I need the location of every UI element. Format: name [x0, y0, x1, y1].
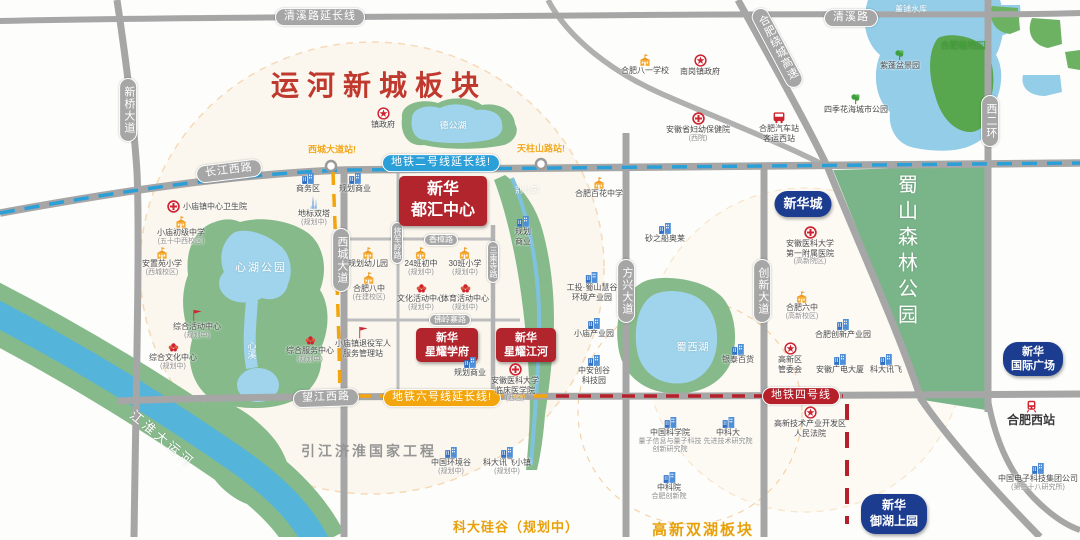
map-poi: 合肥百花中学 — [575, 177, 623, 199]
flag-icon — [191, 309, 203, 322]
park-water-label: 别公园 — [515, 185, 539, 196]
road-name-label: 西二环 — [981, 95, 999, 147]
map-poi: 文化活动中心(规划中) — [397, 282, 445, 312]
park-tree-icon — [850, 93, 862, 105]
map-poi: 中安创谷科技园 — [578, 354, 610, 385]
school-icon — [638, 54, 652, 66]
culture-center-icon — [167, 341, 180, 353]
road-name-label: 新桥大道 — [119, 78, 137, 142]
map-poi: 规划商业 — [454, 356, 486, 378]
school-icon — [361, 247, 375, 259]
map-poi: 中国环境谷(规划中) — [431, 446, 471, 476]
building-icon — [444, 446, 458, 458]
road-name-label: 合肥绕城高速 — [749, 5, 806, 91]
hospital-icon — [509, 363, 522, 376]
building-icon — [301, 172, 315, 184]
government-icon — [784, 342, 797, 355]
building-icon — [500, 446, 514, 458]
map-poi: 综合文化中心(规划中) — [149, 341, 197, 371]
flag-icon — [357, 326, 369, 339]
map-poi: 南岗镇政府 — [680, 54, 720, 77]
map-poi: 综合活动中心(规划中) — [173, 309, 221, 340]
map-poi: 高新技术产业开发区人民法院 — [774, 406, 846, 438]
area-title-label: 科大硅谷（规划中） — [453, 517, 579, 536]
area-title-label: 运河新城板块 — [271, 64, 487, 104]
map-poi: 合肥创新产业园 — [815, 318, 871, 340]
map-poi: 商务区 — [296, 172, 320, 194]
school-icon — [414, 247, 428, 259]
metro-line-label: 地铁六号线延长线! — [383, 389, 501, 407]
road-name-label: 佛岭寨路 — [429, 314, 471, 326]
map-poi: 四季花海城市公园 — [824, 93, 888, 115]
project-box: 新华城 — [775, 191, 832, 217]
train-station-icon — [1024, 400, 1037, 413]
culture-center-icon — [304, 334, 317, 346]
park-water-label: 合肥植物园 — [940, 39, 985, 52]
road-name-label: 将军岭路 — [391, 222, 403, 264]
map-poi: 工投·蜀山慧谷环境产业园 — [567, 271, 618, 302]
map-poi: 中科大先进技术研究院 — [704, 416, 753, 446]
culture-center-icon — [415, 282, 428, 294]
map-poi: 规划幼儿园 — [348, 247, 388, 269]
hospital-icon — [692, 112, 705, 125]
twin-towers-icon — [308, 195, 320, 209]
project-box: 新华都汇中心 — [399, 176, 487, 226]
map-poi: 规划商业 — [515, 215, 531, 246]
school-icon — [155, 247, 169, 259]
school-icon — [174, 216, 188, 228]
park-water-label: 心溪 — [246, 341, 259, 359]
map-poi: 安徽医科大学第一附属医院(高新院区) — [786, 226, 834, 267]
map-poi: 合肥八中(在建校区) — [353, 272, 386, 302]
map-poi: 科大讯飞小镇(规划中) — [483, 446, 531, 476]
map-poi: 地标双塔(规划中) — [298, 195, 330, 227]
map-poi: 小庙镇中心卫生院 — [167, 200, 247, 213]
real-estate-location-map: 清溪路延长线清溪路新桥大道长江西路西城大道将军岭路三乘寺路香樟路佛岭寨路方兴大道… — [0, 0, 1080, 537]
government-icon — [694, 54, 707, 67]
building-icon — [516, 215, 530, 227]
map-poi: 合肥六中(高新校区) — [786, 291, 819, 321]
park-water-label: 德公湖 — [439, 119, 466, 132]
area-title-label: 引江济淮国家工程 — [301, 441, 437, 461]
metro-line-label: 地铁四号线 — [762, 387, 840, 405]
building-icon — [662, 471, 676, 483]
building-icon — [879, 353, 893, 365]
building-icon — [663, 416, 677, 428]
map-poi: 综合服务中心(规划中) — [286, 334, 334, 364]
hospital-icon — [167, 200, 180, 213]
hospital-icon — [804, 226, 817, 239]
map-poi: 紫蓬盆景园 — [880, 49, 920, 71]
park-water-label: 心湖公园 — [235, 259, 287, 275]
building-icon — [833, 353, 847, 365]
metro-line-label: 地铁二号线延长线! — [382, 154, 500, 172]
road-name-label: 长江西路 — [195, 158, 263, 184]
map-poi: 科大讯飞 — [870, 353, 902, 375]
map-poi: 高新区管委会 — [778, 342, 802, 374]
map-poi: 安徽广电大厦 — [816, 353, 864, 375]
project-box: 新华御湖上园 — [861, 494, 927, 534]
building-icon — [658, 222, 672, 234]
building-icon — [836, 318, 850, 330]
metro-station-label: 天柱山路站! — [517, 142, 565, 155]
culture-center-icon — [459, 282, 472, 294]
park-water-label: 蜀西湖 — [677, 339, 710, 354]
building-icon — [1031, 462, 1045, 474]
government-icon — [377, 107, 390, 120]
map-poi: 中国科学院量子信息与量子科技创新研究院 — [639, 416, 702, 454]
park-tree-icon — [894, 49, 906, 61]
map-poi: 银泰百货 — [722, 343, 754, 365]
map-label-overlay: 清溪路延长线清溪路新桥大道长江西路西城大道将军岭路三乘寺路香樟路佛岭寨路方兴大道… — [0, 0, 1080, 537]
road-name-label: 方兴大道 — [617, 259, 635, 323]
map-poi: 小庙镇退役军人服务管理站 — [335, 326, 391, 358]
map-poi: 体育活动中心(规划中) — [441, 282, 489, 312]
map-poi: 安置苑小学(西城校区) — [142, 247, 182, 277]
bus-station-icon — [772, 111, 786, 124]
school-icon — [592, 177, 606, 189]
road-name-label: 望江西路 — [293, 388, 360, 408]
map-poi: 中科院合肥创新院 — [652, 471, 687, 501]
park-water-label: 董铺水库 — [895, 4, 927, 15]
metro-station-label: 西城大道站! — [308, 143, 356, 156]
map-poi: 镇政府 — [371, 107, 395, 130]
building-icon — [348, 172, 362, 184]
building-icon — [463, 356, 477, 368]
building-icon — [585, 271, 599, 283]
government-icon — [804, 406, 817, 419]
map-poi: 合肥八一学校 — [621, 54, 669, 76]
park-water-label: 江淮大运河 — [126, 405, 200, 471]
school-icon — [795, 291, 809, 303]
map-poi: 安徽医科大学临床医学院(西区) — [491, 363, 539, 404]
school-icon — [362, 272, 376, 284]
map-poi: 合肥西站 — [1007, 400, 1055, 427]
project-box: 新华国际广场 — [1003, 342, 1063, 376]
area-title-label: 高新双湖板块 — [652, 519, 754, 540]
map-poi: 合肥汽车站客运西站 — [759, 111, 799, 143]
building-icon — [587, 354, 601, 366]
map-poi: 安徽省妇幼保健院(西院) — [666, 112, 730, 143]
map-poi: 中国电子科技集团公司(第三十八研究所) — [998, 462, 1078, 492]
building-icon — [721, 416, 735, 428]
building-icon — [731, 343, 745, 355]
road-name-label: 创新大道 — [753, 259, 771, 323]
building-icon — [587, 317, 601, 329]
school-icon — [458, 247, 472, 259]
map-poi: 30班小学(规划中) — [449, 247, 482, 277]
road-name-label: 清溪路延长线 — [275, 8, 365, 26]
road-name-label: 清溪路 — [824, 9, 878, 27]
road-name-label: 香樟路 — [424, 234, 458, 246]
road-name-label: 三乘寺路 — [487, 241, 499, 283]
map-poi: 小庙初级中学(五十中西校区) — [157, 216, 205, 246]
map-poi: 砂之船奥莱 — [645, 222, 685, 244]
map-poi: 规划商业 — [339, 172, 371, 194]
map-poi: 小庙产业园 — [574, 317, 614, 339]
park-water-label: 蜀山森林公园 — [892, 174, 921, 330]
project-box: 新华星耀江河 — [496, 328, 556, 362]
map-poi: 24班初中(规划中) — [405, 247, 438, 277]
